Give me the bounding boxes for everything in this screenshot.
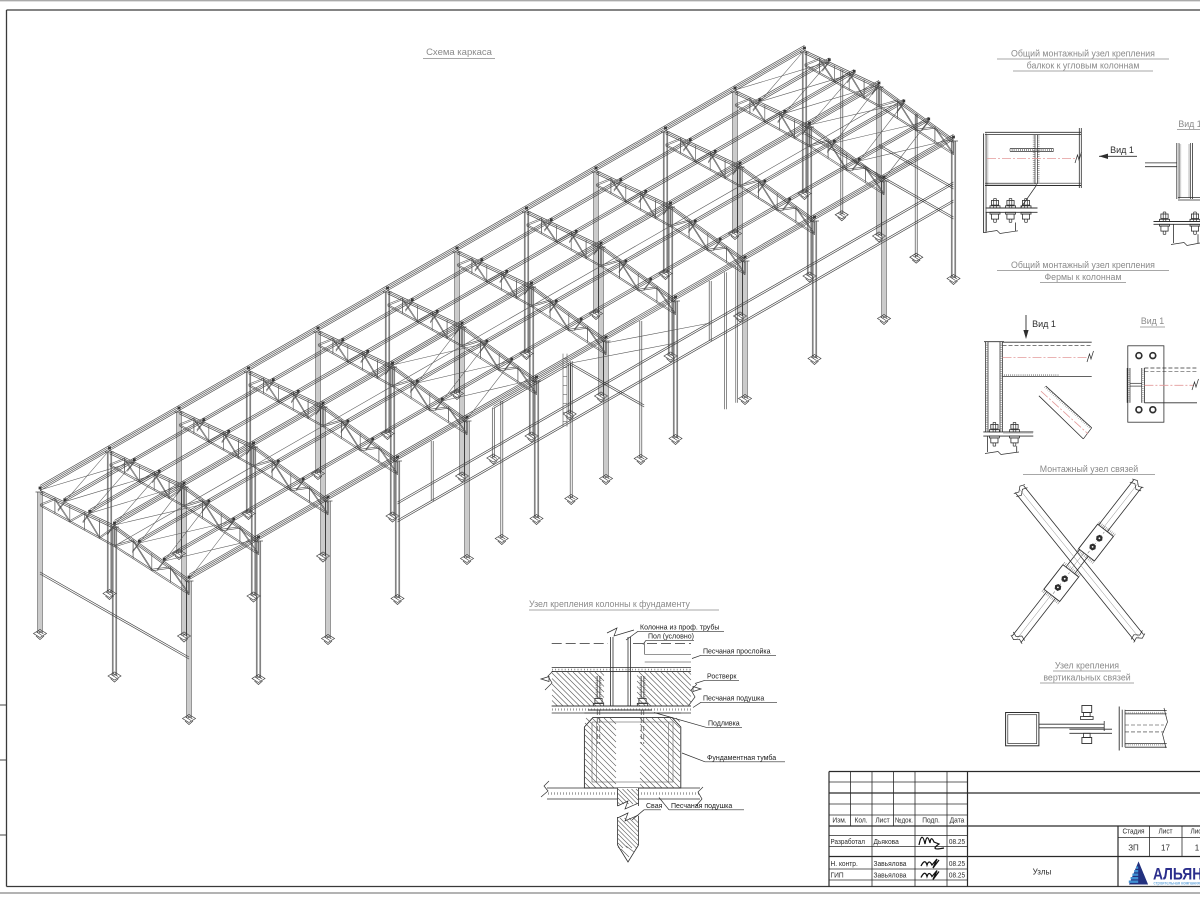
svg-text:17: 17 (1161, 844, 1170, 853)
svg-text:ЗП: ЗП (1128, 844, 1139, 853)
svg-text:балкок к угловым колоннам: балкок к угловым колоннам (1027, 61, 1140, 71)
svg-text:Песчаная подушка: Песчаная подушка (703, 696, 764, 703)
svg-text:Общий монтажный узел крепления: Общий монтажный узел крепления (1011, 260, 1155, 270)
svg-text:Фундаментная тумба: Фундаментная тумба (707, 754, 776, 762)
svg-text:Дата: Дата (950, 817, 965, 824)
svg-text:Дьякова: Дьякова (874, 839, 899, 846)
svg-text:Н. контр.: Н. контр. (831, 861, 858, 868)
svg-text:Песчаная прослойка: Песчаная прослойка (703, 648, 771, 656)
svg-text:Завьялова: Завьялова (874, 861, 907, 868)
svg-text:Стадия: Стадия (1122, 828, 1144, 835)
svg-text:Вид 1: Вид 1 (1110, 145, 1134, 155)
svg-text:Песчаная подушка: Песчаная подушка (671, 803, 732, 810)
svg-text:Изм.: Изм. (832, 817, 846, 824)
svg-text:Фермы к колоннам: Фермы к колоннам (1044, 272, 1121, 282)
svg-text:Ростверк: Ростверк (707, 674, 737, 681)
svg-text:Узел крепления колонны к фунда: Узел крепления колонны к фундаменту (529, 599, 691, 609)
svg-text:Подливка: Подливка (708, 721, 740, 728)
svg-text:Вид 1: Вид 1 (1178, 119, 1200, 129)
svg-text:Лис: Лис (1190, 828, 1200, 835)
svg-text:Завьялова: Завьялова (874, 872, 907, 879)
svg-text:Разработал: Разработал (831, 838, 865, 846)
svg-text:Схема каркаса: Схема каркаса (426, 47, 493, 58)
svg-text:Узлы: Узлы (1033, 868, 1052, 877)
svg-text:Монтажный узел связей: Монтажный узел связей (1040, 464, 1138, 474)
svg-text:Вид 1: Вид 1 (1032, 319, 1056, 329)
svg-text:вертикальных связей: вертикальных связей (1043, 673, 1130, 683)
svg-text:Узел крепления: Узел крепления (1055, 661, 1119, 671)
svg-text:08.25: 08.25 (949, 839, 965, 846)
svg-text:№док.: №док. (895, 817, 913, 825)
svg-text:1: 1 (1195, 844, 1200, 853)
svg-text:Колонна из проф. трубы: Колонна из проф. трубы (640, 624, 719, 632)
svg-text:строительная компания: строительная компания (1154, 881, 1200, 886)
svg-text:Подп.: Подп. (922, 817, 940, 824)
svg-text:Общий монтажный узел крепления: Общий монтажный узел крепления (1011, 49, 1155, 59)
svg-text:Лист: Лист (1158, 828, 1173, 835)
svg-text:08.25: 08.25 (949, 861, 965, 868)
svg-text:08.25: 08.25 (949, 872, 965, 879)
svg-text:Кол.: Кол. (854, 817, 867, 824)
svg-text:Свая: Свая (646, 803, 663, 810)
svg-text:Пол (условно): Пол (условно) (648, 634, 694, 641)
svg-text:Лист: Лист (875, 817, 890, 824)
svg-text:ГИП: ГИП (831, 872, 844, 879)
svg-text:Вид 1: Вид 1 (1141, 316, 1164, 326)
